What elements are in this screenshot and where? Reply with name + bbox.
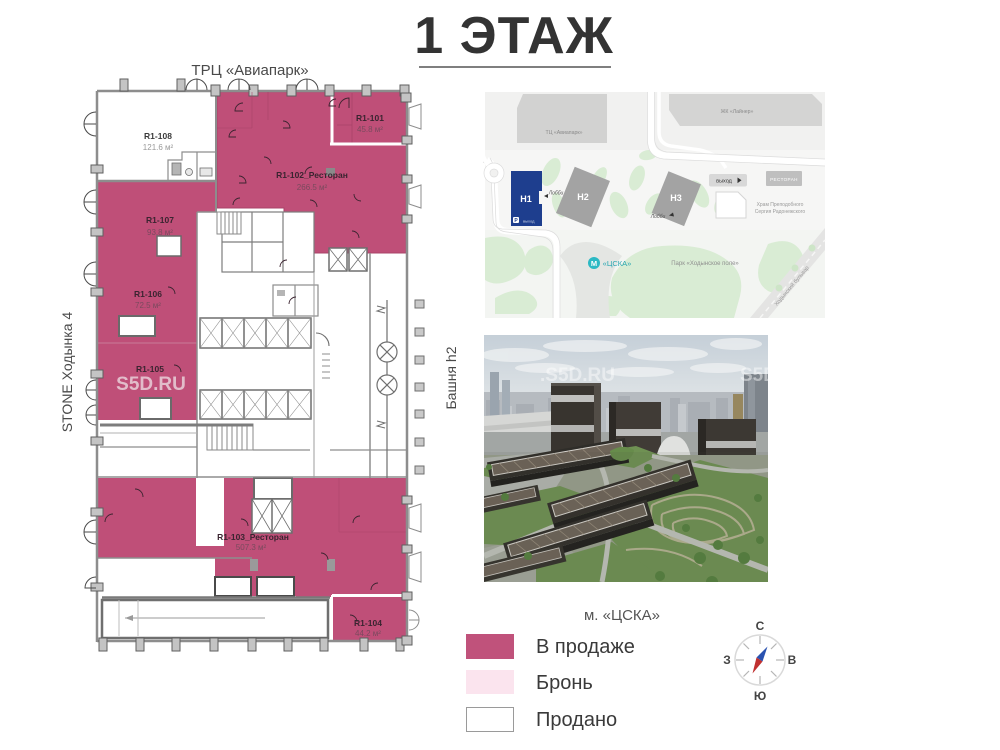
svg-text:выход: выход [523,219,535,224]
svg-text:Храм Преподобного: Храм Преподобного [757,202,804,208]
svg-text:С: С [756,619,765,633]
svg-text:З: З [723,653,731,667]
svg-text:Парк «Ходынское поле»: Парк «Ходынское поле» [671,261,739,267]
svg-text:44.2 м²: 44.2 м² [355,629,381,638]
svg-text:STONE Ходынка 4: STONE Ходынка 4 [59,312,75,433]
svg-text:507.3 м²: 507.3 м² [236,543,267,552]
svg-text:R1-108: R1-108 [144,131,172,141]
svg-text:Продано: Продано [536,709,617,731]
svg-text:Н3: Н3 [670,193,682,203]
svg-text:ЖК «Лайнер»: ЖК «Лайнер» [721,108,754,115]
svg-text:В: В [788,653,797,667]
svg-text:Н2: Н2 [577,192,589,202]
svg-text:ТЦ «Авиапарк»: ТЦ «Авиапарк» [545,130,582,136]
svg-text:Бронь: Бронь [536,672,593,694]
svg-text:Лобби: Лобби [650,214,666,220]
svg-text:S5D.RU: S5D.RU [116,374,186,395]
svg-text:R1-105: R1-105 [136,364,164,374]
svg-text:В продаже: В продаже [536,636,635,658]
svg-text:выход: выход [716,179,733,185]
svg-text:72.5 м²: 72.5 м² [135,301,161,310]
svg-text:S5D.RU: S5D.RU [740,365,810,386]
svg-text:121.6 м²: 121.6 м² [143,143,174,152]
svg-text:266.5 м²: 266.5 м² [297,183,328,192]
svg-text:РЕСТОРАН: РЕСТОРАН [770,177,798,182]
svg-text:R1-103_Ресторан: R1-103_Ресторан [217,532,289,542]
svg-text:М: М [591,259,597,268]
svg-text:ТРЦ «Авиапарк»: ТРЦ «Авиапарк» [191,62,308,79]
svg-text:R1-107: R1-107 [146,215,174,225]
svg-text:Сергия Радонежского: Сергия Радонежского [755,209,806,215]
svg-text:.S5D.RU: .S5D.RU [540,365,615,386]
svg-text:«ЦСКА»: «ЦСКА» [603,259,632,268]
svg-text:R1-106: R1-106 [134,289,162,299]
svg-text:R1-101: R1-101 [356,113,384,123]
svg-text:R1-104: R1-104 [354,618,382,628]
svg-text:Н1: Н1 [520,194,532,204]
svg-text:Лобби: Лобби [548,191,564,197]
svg-text:Ю: Ю [754,689,766,703]
svg-text:1 ЭТАЖ: 1 ЭТАЖ [414,7,613,65]
svg-text:м. «ЦСКА»: м. «ЦСКА» [584,607,660,624]
svg-text:R1-102_Ресторан: R1-102_Ресторан [276,170,348,180]
svg-text:Башня h2: Башня h2 [443,346,459,409]
svg-text:93.8 м²: 93.8 м² [147,228,173,237]
svg-text:45.8 м²: 45.8 м² [357,125,383,134]
